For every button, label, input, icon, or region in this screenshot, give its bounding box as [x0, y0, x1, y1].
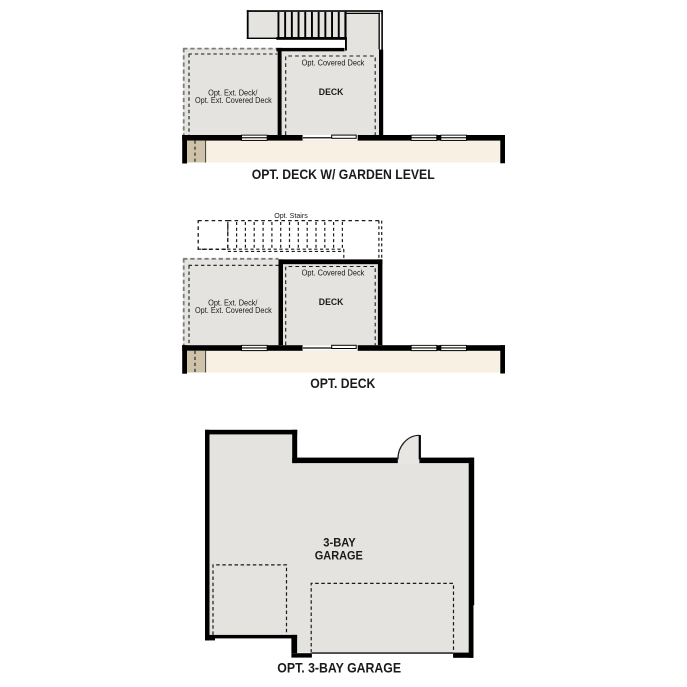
svg-text:Opt. Ext. Covered Deck: Opt. Ext. Covered Deck	[195, 306, 273, 315]
svg-text:Opt. Stairs: Opt. Stairs	[274, 211, 308, 220]
svg-text:OPT. 3-BAY GARAGE: OPT. 3-BAY GARAGE	[277, 659, 401, 675]
svg-text:OPT. DECK: OPT. DECK	[310, 375, 375, 391]
svg-text:Opt. Ext. Covered Deck: Opt. Ext. Covered Deck	[195, 96, 273, 105]
svg-text:Opt. Covered Deck: Opt. Covered Deck	[302, 58, 366, 67]
svg-text:Opt. Covered Deck: Opt. Covered Deck	[302, 268, 366, 277]
svg-text:OPT. DECK W/ GARDEN LEVEL: OPT. DECK W/ GARDEN LEVEL	[252, 166, 435, 182]
svg-text:DECK: DECK	[319, 87, 344, 97]
svg-text:3-BAY: 3-BAY	[323, 535, 355, 549]
svg-text:DECK: DECK	[319, 297, 344, 307]
svg-text:GARAGE: GARAGE	[315, 549, 363, 563]
